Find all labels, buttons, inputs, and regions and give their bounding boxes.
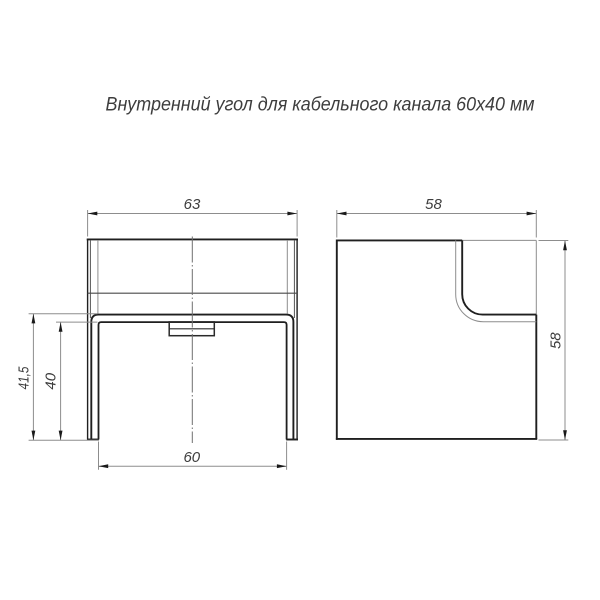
svg-text:Внутренний угол для кабельного: Внутренний угол для кабельного канала 60…	[106, 95, 535, 116]
svg-text:60: 60	[183, 449, 200, 466]
svg-text:58: 58	[548, 332, 565, 349]
svg-text:63: 63	[184, 196, 201, 213]
svg-text:58: 58	[425, 196, 442, 213]
svg-text:41,5: 41,5	[16, 366, 33, 390]
svg-text:40: 40	[43, 372, 60, 389]
